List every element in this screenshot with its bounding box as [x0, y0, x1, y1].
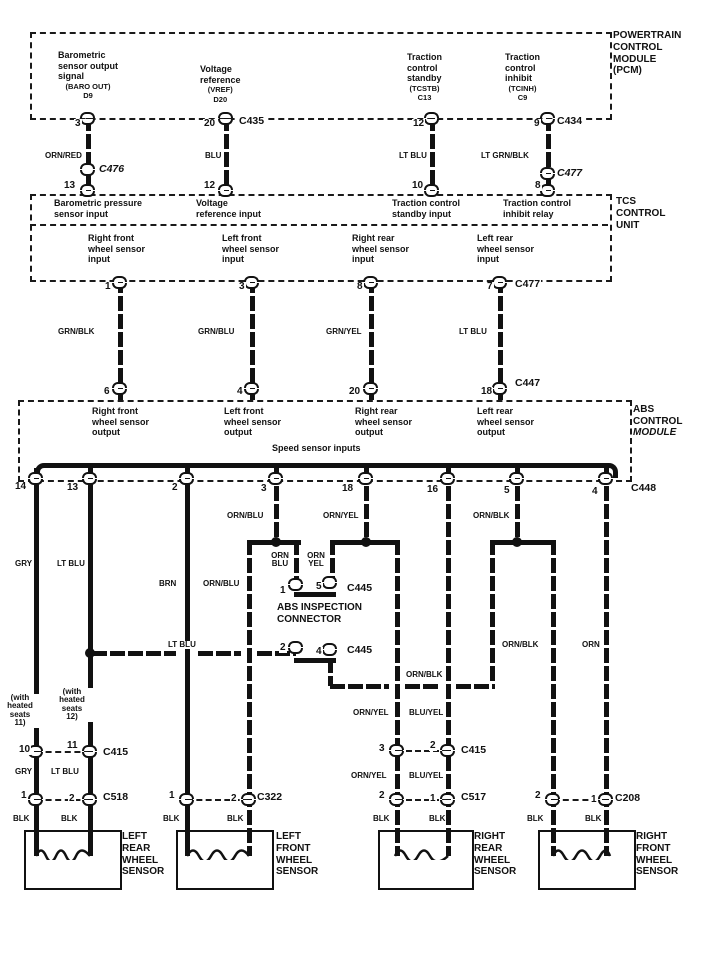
c415l-pin-10: 10	[18, 745, 31, 755]
joint	[80, 184, 96, 197]
orn-blk-tap-seg1	[330, 684, 389, 689]
joint	[218, 184, 234, 197]
abs-pin-16: 16	[426, 485, 439, 495]
label-orn: ORN	[581, 641, 601, 649]
joint-c445-1	[288, 578, 304, 591]
abs-pin-14: 14	[14, 482, 27, 492]
abs-pin-13: 13	[66, 483, 79, 493]
joint-c445-5	[322, 576, 338, 589]
joint	[545, 793, 561, 806]
tcs-pin-13: 13	[63, 181, 76, 191]
joint	[82, 745, 98, 758]
joint	[389, 793, 405, 806]
joint	[179, 472, 195, 485]
abs-pin-18: 18	[341, 484, 354, 494]
connector-c445-bottom: C445	[346, 645, 373, 656]
joint	[80, 112, 96, 125]
connector-c445-top: C445	[346, 583, 373, 594]
pcm-signal-vref: Voltage reference (VREF) D20	[200, 64, 241, 104]
tcs-pin-8: 8	[534, 181, 542, 191]
joint	[28, 472, 44, 485]
coil-left-rear	[28, 844, 98, 860]
abs-output-rr: Right rear wheel sensor output	[355, 406, 412, 438]
connector-c477-top: C477	[556, 168, 583, 179]
wire-label-blu: BLU	[204, 152, 222, 160]
note-heated-seats-11: (with heated seats 11)	[0, 694, 40, 728]
inspection-pin-1: 1	[279, 586, 287, 596]
pcm-pin-3: 3	[74, 119, 82, 129]
tcs-input-baro: Barometric pressure sensor input	[54, 198, 142, 219]
connector-c434: C434	[556, 116, 583, 127]
abs-output-lr: Left rear wheel sensor output	[477, 406, 534, 438]
inspection-pin-5: 5	[315, 582, 323, 592]
c415l-pin-11: 11	[66, 741, 79, 751]
wire-label-lt-blu-2: LT BLU	[458, 328, 488, 336]
c322-pin-1: 1	[168, 791, 176, 801]
inspection-bottom-bracket	[294, 658, 336, 663]
label-orn-yel-upper: ORN/YEL	[322, 512, 360, 520]
inspection-pin-2: 2	[279, 643, 287, 653]
connector-c518: C518	[102, 792, 129, 803]
inspection-top-bracket	[294, 592, 336, 597]
abs-pin-3: 3	[260, 484, 268, 494]
junction-orn-yel	[361, 537, 371, 547]
joint	[598, 793, 614, 806]
label-orn-blk-tap: ORN/BLK	[405, 671, 443, 679]
wire-label-lt-grn-blk: LT GRN/BLK	[480, 152, 530, 160]
wire-orn-yel-main	[395, 540, 400, 856]
joint	[540, 184, 556, 197]
junction-orn-blu	[271, 537, 281, 547]
connector-c322: C322	[256, 792, 283, 803]
joint	[363, 382, 379, 395]
right-front-wheel-sensor-label: RIGHT FRONT WHEEL SENSOR	[636, 831, 678, 878]
label-gry-2: GRY	[14, 768, 33, 776]
wire-label-orn-red: ORN/RED	[44, 152, 83, 160]
inspection-title: ABS INSPECTION CONNECTOR	[277, 602, 362, 626]
c517-pin-1: 1	[429, 794, 437, 804]
wire-label-grn-blk: GRN/BLK	[57, 328, 95, 336]
wire-lt-grn-blk	[546, 116, 551, 194]
label-blk-rf2: BLK	[584, 815, 602, 823]
tcs-sensor-input-lf: Left front wheel sensor input	[222, 233, 279, 265]
abs-pin-20: 20	[348, 387, 361, 397]
label-blu-yel-2: BLU/YEL	[408, 772, 444, 780]
abs-title: ABS CONTROL	[633, 404, 682, 428]
label-gry: GRY	[14, 560, 33, 568]
wire-blu	[224, 116, 229, 194]
label-orn-blk-upper: ORN/BLK	[472, 512, 510, 520]
wiring-diagram: POWERTRAIN CONTROL MODULE (PCM) TCS CONT…	[0, 0, 701, 972]
c415r-pin-3: 3	[378, 744, 386, 754]
wire-lt-blu-1	[430, 116, 435, 194]
connector-c476: C476	[98, 164, 125, 175]
label-blk-lr1: BLK	[12, 815, 30, 823]
c517-pin-2: 2	[378, 791, 386, 801]
joint-c477	[540, 167, 556, 180]
junction-orn-blk	[512, 537, 522, 547]
tcs-pin-1: 1	[104, 282, 112, 292]
label-blk-rr2: BLK	[428, 815, 446, 823]
wire-orn-blk-main	[551, 540, 556, 856]
c518-pin-1: 1	[20, 791, 28, 801]
tcs-pin-7: 7	[486, 282, 494, 292]
label-blk-rf1: BLK	[526, 815, 544, 823]
abs-title-module: MODULE	[633, 427, 676, 439]
speed-sensor-inputs-label: Speed sensor inputs	[272, 443, 361, 454]
label-blu-yel-mid: BLU/YEL	[408, 709, 444, 717]
pcm-title: POWERTRAIN CONTROL MODULE (PCM)	[613, 30, 681, 77]
lt-blu-tap-seg1	[92, 651, 176, 656]
joint	[244, 276, 260, 289]
joint	[389, 744, 405, 757]
label-blk-lf2: BLK	[226, 815, 244, 823]
joint	[424, 112, 440, 125]
abs-pin-4t: 4	[236, 387, 244, 397]
wire-label-lt-blu: LT BLU	[398, 152, 428, 160]
right-rear-wheel-sensor	[378, 830, 474, 890]
abs-pin-4: 4	[591, 487, 599, 497]
tcs-sensor-input-rf: Right front wheel sensor input	[88, 233, 145, 265]
abs-pin-6: 6	[103, 387, 111, 397]
connector-c435: C435	[238, 116, 265, 127]
joint	[241, 793, 257, 806]
label-orn-yel-mid: ORN/YEL	[352, 709, 390, 717]
label-orn-yel-2: ORN/YEL	[350, 772, 388, 780]
left-front-wheel-sensor	[176, 830, 274, 890]
tcs-pin-3: 3	[238, 282, 246, 292]
joint-c445-2	[288, 641, 304, 654]
c322-pin-2: 2	[230, 794, 238, 804]
joint	[440, 472, 456, 485]
label-brn: BRN	[158, 580, 177, 588]
pcm-pin-9: 9	[533, 119, 541, 129]
joint	[244, 382, 260, 395]
joint	[440, 793, 456, 806]
abs-output-rf: Right front wheel sensor output	[92, 406, 149, 438]
c518-pin-2: 2	[68, 794, 76, 804]
label-blk-rr1: BLK	[372, 815, 390, 823]
joint	[82, 472, 98, 485]
joint	[218, 112, 234, 125]
coil-right-front	[542, 844, 618, 860]
tcs-pin-10: 10	[411, 181, 424, 191]
speed-sensor-bus	[35, 463, 618, 478]
joint	[363, 276, 379, 289]
tcs-title: TCS CONTROL UNIT	[616, 196, 665, 231]
wire-orn-blk-bracket	[492, 540, 555, 545]
right-rear-wheel-sensor-label: RIGHT REAR WHEEL SENSOR	[474, 831, 516, 878]
abs-pin-5: 5	[503, 486, 511, 496]
junction-lt-blu	[85, 648, 95, 658]
label-orn-blu-stack: ORN BLU	[266, 552, 294, 569]
joint	[424, 184, 440, 197]
label-lt-blu-3: LT BLU	[50, 768, 80, 776]
joint	[28, 793, 44, 806]
tcs-sensor-input-lr: Left rear wheel sensor input	[477, 233, 534, 265]
tcs-divider	[30, 224, 608, 226]
abs-pin-2: 2	[171, 483, 179, 493]
connector-c448: C448	[630, 483, 657, 494]
abs-pin-18t: 18	[480, 387, 493, 397]
c208-pin-1: 1	[590, 795, 598, 805]
label-blk-lr2: BLK	[60, 815, 78, 823]
connector-c447: C447	[514, 378, 541, 389]
pcm-signal-tcstb: Traction control standby (TCSTB) C13	[407, 52, 442, 103]
c415r-pin-2: 2	[429, 741, 437, 751]
joint	[598, 472, 614, 485]
joint	[509, 472, 525, 485]
connector-c477-bottom: C477	[514, 279, 541, 290]
connector-c208: C208	[614, 793, 641, 804]
wire-orn-red	[86, 116, 91, 194]
abs-output-lf: Left front wheel sensor output	[224, 406, 281, 438]
joint	[492, 276, 508, 289]
left-rear-wheel-sensor-label: LEFT REAR WHEEL SENSOR	[122, 831, 164, 878]
tcs-input-inhibit: Traction control inhibit relay	[503, 198, 571, 219]
joint	[268, 472, 284, 485]
wire-label-grn-blu: GRN/BLU	[197, 328, 235, 336]
label-lt-blu-tap: LT BLU	[167, 641, 197, 649]
joint	[112, 276, 128, 289]
wire-label-grn-yel: GRN/YEL	[325, 328, 363, 336]
orn-blk-tap-seg3	[456, 684, 495, 689]
label-orn-blu-main: ORN/BLU	[202, 580, 240, 588]
pcm-signal-tcinh: Traction control inhibit (TCINH) C9	[505, 52, 540, 103]
tcs-input-vref: Voltage reference input	[196, 198, 261, 219]
wire-orn-blk-left-leg	[490, 540, 495, 689]
pcm-signal-baro: Barometric sensor output signal (BARO OU…	[58, 50, 118, 101]
joint	[540, 112, 556, 125]
joint	[492, 382, 508, 395]
tcs-pin-12: 12	[203, 181, 216, 191]
label-blk-lf1: BLK	[162, 815, 180, 823]
label-orn-blu-upper: ORN/BLU	[226, 512, 264, 520]
lt-blu-tap-seg2	[198, 651, 241, 656]
note-heated-seats-12: (with heated seats 12)	[50, 688, 94, 722]
tcs-pin-8b: 8	[356, 282, 364, 292]
coil-right-rear	[382, 844, 458, 860]
tcs-sensor-input-rr: Right rear wheel sensor input	[352, 233, 409, 265]
pcm-pin-20: 20	[203, 119, 216, 129]
wire-orn-blu-main	[247, 540, 252, 856]
joint	[82, 793, 98, 806]
orn-blk-tap-seg2	[405, 684, 440, 689]
joint-c445-4	[322, 643, 338, 656]
connector-c415-right: C415	[460, 745, 487, 756]
connector-c415-left: C415	[102, 747, 129, 758]
joint	[440, 744, 456, 757]
label-lt-blu: LT BLU	[56, 560, 86, 568]
c208-pin-2: 2	[534, 791, 542, 801]
left-front-wheel-sensor-label: LEFT FRONT WHEEL SENSOR	[276, 831, 318, 878]
pcm-pin-12: 12	[412, 119, 425, 129]
joint	[358, 472, 374, 485]
joint	[112, 382, 128, 395]
joint-c476	[80, 163, 96, 176]
coil-left-front	[180, 844, 256, 860]
label-orn-blk-main: ORN/BLK	[501, 641, 539, 649]
label-orn-yel-stack: ORN YEL	[302, 552, 330, 569]
c322-line	[187, 799, 249, 801]
joint	[179, 793, 195, 806]
inspection-pin-4: 4	[315, 647, 323, 657]
tcs-input-standby: Traction control standby input	[392, 198, 460, 219]
connector-c517: C517	[460, 792, 487, 803]
